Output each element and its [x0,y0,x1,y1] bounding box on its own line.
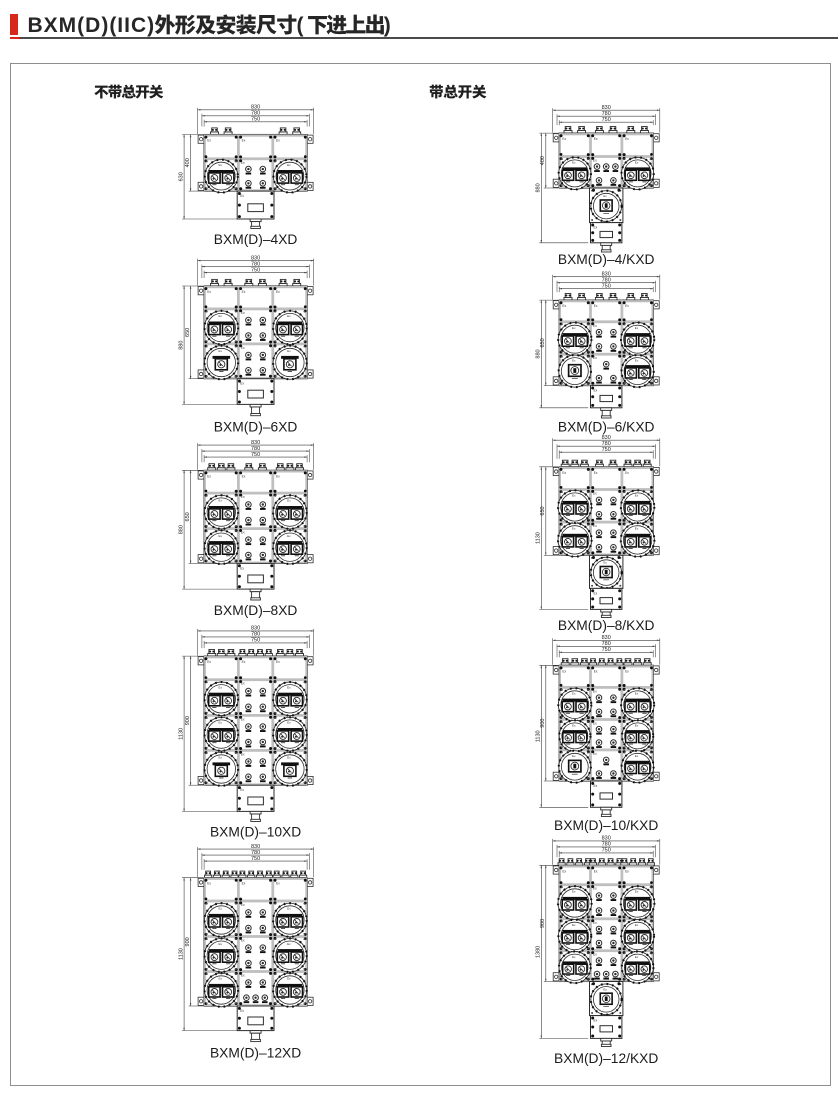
svg-text:Ex: Ex [635,358,639,362]
svg-text:Ex: Ex [276,882,280,886]
svg-text:BXM(D)–12/KXD: BXM(D)–12/KXD [554,1051,658,1066]
svg-text:Ex: Ex [572,358,576,362]
svg-text:Ex: Ex [219,163,223,167]
svg-text:Ex: Ex [635,494,639,498]
svg-text:Ex: Ex [625,869,629,873]
svg-text:Ex: Ex [287,534,291,538]
svg-text:1130: 1130 [536,532,542,544]
svg-text:Ex: Ex [594,869,598,873]
svg-text:Ex: Ex [219,721,223,725]
svg-text:Ex: Ex [635,923,639,927]
svg-text:Ex: Ex [207,882,211,886]
svg-text:Ex: Ex [241,495,245,499]
svg-text:Ex: Ex [287,977,291,981]
svg-text:630: 630 [179,172,185,181]
svg-text:Ex: Ex [572,692,576,696]
svg-text:750: 750 [251,856,260,862]
svg-text:400: 400 [185,158,191,167]
svg-text:Ex: Ex [625,304,629,308]
svg-text:Ex: Ex [594,471,598,475]
svg-text:Ex: Ex [241,682,245,686]
svg-text:Ex: Ex [287,685,291,689]
svg-text:Ex: Ex [241,161,245,165]
svg-text:Ex: Ex [240,788,244,792]
svg-text:Ex: Ex [593,159,597,163]
svg-text:Ex: Ex [572,754,576,758]
svg-text:650: 650 [540,338,546,347]
svg-text:Ex: Ex [242,139,246,143]
svg-text:750: 750 [602,117,611,123]
svg-text:900: 900 [185,937,191,946]
svg-text:Ex: Ex [207,290,211,294]
svg-text:Ex: Ex [593,752,597,756]
svg-text:1130: 1130 [179,948,185,960]
svg-text:Ex: Ex [594,137,598,141]
svg-text:BXM(D)–6/KXD: BXM(D)–6/KXD [558,419,655,434]
svg-text:Ex: Ex [219,534,223,538]
svg-text:Ex: Ex [219,314,223,318]
svg-text:Ex: Ex [593,887,597,891]
svg-text:Ex: Ex [241,346,245,350]
svg-text:Ex: Ex [572,724,576,728]
svg-text:1130: 1130 [179,728,185,740]
svg-text:BXM(D)–6XD: BXM(D)–6XD [214,420,298,435]
svg-text:Ex: Ex [594,784,598,788]
svg-text:Ex: Ex [593,689,597,693]
svg-text:Ex: Ex [594,1019,598,1023]
svg-text:750: 750 [602,284,611,290]
svg-text:Ex: Ex [562,137,566,141]
svg-text:Ex: Ex [562,471,566,475]
svg-text:Ex: Ex [594,669,598,673]
svg-text:Ex: Ex [603,561,607,565]
svg-text:Ex: Ex [241,939,245,943]
svg-text:Ex: Ex [572,161,576,165]
svg-text:Ex: Ex [287,756,291,760]
svg-text:Ex: Ex [562,669,566,673]
svg-text:Ex: Ex [572,326,576,330]
svg-text:Ex: Ex [241,717,245,721]
svg-text:Ex: Ex [572,955,576,959]
svg-text:Ex: Ex [219,685,223,689]
svg-text:Ex: Ex [572,527,576,531]
svg-text:Ex: Ex [240,194,244,198]
svg-text:Ex: Ex [240,1009,244,1013]
svg-text:Ex: Ex [207,139,211,143]
svg-text:Ex: Ex [287,349,291,353]
svg-text:Ex: Ex [241,903,245,907]
svg-text:Ex: Ex [593,356,597,360]
svg-text:750: 750 [602,848,611,854]
svg-text:Ex: Ex [287,163,291,167]
svg-text:Ex: Ex [219,499,223,503]
svg-text:Ex: Ex [287,721,291,725]
svg-text:1380: 1380 [536,946,542,958]
svg-text:Ex: Ex [287,499,291,503]
svg-text:Ex: Ex [207,474,211,478]
svg-text:Ex: Ex [572,890,576,894]
svg-text:Ex: Ex [276,660,280,664]
svg-text:900: 900 [185,716,191,725]
svg-text:750: 750 [602,447,611,453]
svg-text:Ex: Ex [635,754,639,758]
svg-text:BXM(D)–8/KXD: BXM(D)–8/KXD [558,618,655,633]
svg-text:Ex: Ex [287,907,291,911]
svg-text:Ex: Ex [241,974,245,978]
svg-text:880: 880 [536,349,542,358]
svg-text:Ex: Ex [625,471,629,475]
svg-text:750: 750 [602,647,611,653]
svg-text:750: 750 [251,452,260,458]
svg-text:BXM(D)–12XD: BXM(D)–12XD [210,1045,301,1060]
svg-text:880: 880 [179,341,185,350]
svg-text:Ex: Ex [635,890,639,894]
svg-text:650: 650 [185,512,191,521]
svg-text:Ex: Ex [241,752,245,756]
svg-text:Ex: Ex [562,304,566,308]
svg-text:Ex: Ex [219,907,223,911]
svg-text:Ex: Ex [593,492,597,496]
svg-text:750: 750 [251,638,260,644]
svg-text:Ex: Ex [603,194,607,198]
svg-text:Ex: Ex [594,226,598,230]
svg-text:650: 650 [185,328,191,337]
svg-text:750: 750 [251,267,260,273]
svg-text:650: 650 [540,506,546,515]
svg-text:BXM(D)–10XD: BXM(D)–10XD [210,825,301,840]
svg-text:BXM(D)–10/KXD: BXM(D)–10/KXD [554,818,658,833]
svg-text:750: 750 [251,117,260,123]
svg-text:Ex: Ex [242,290,246,294]
svg-text:BXM(D)–4/KXD: BXM(D)–4/KXD [558,252,655,267]
svg-text:Ex: Ex [287,942,291,946]
svg-text:Ex: Ex [572,494,576,498]
svg-text:BXM(D)–4XD: BXM(D)–4XD [214,232,298,247]
svg-text:Ex: Ex [593,524,597,528]
svg-text:Ex: Ex [562,869,566,873]
svg-text:880: 880 [536,183,542,192]
svg-text:Ex: Ex [219,349,223,353]
svg-text:Ex: Ex [593,921,597,925]
svg-text:Ex: Ex [635,326,639,330]
svg-text:Ex: Ex [242,660,246,664]
svg-text:1130: 1130 [536,730,542,742]
svg-text:Ex: Ex [240,382,244,386]
svg-text:Ex: Ex [219,942,223,946]
svg-text:Ex: Ex [594,304,598,308]
svg-text:Ex: Ex [635,692,639,696]
svg-text:Ex: Ex [241,311,245,315]
svg-text:Ex: Ex [593,324,597,328]
svg-text:Ex: Ex [635,527,639,531]
svg-text:Ex: Ex [242,882,246,886]
svg-text:Ex: Ex [625,669,629,673]
svg-text:Ex: Ex [219,977,223,981]
svg-text:Ex: Ex [594,591,598,595]
svg-text:BXM(D)–8XD: BXM(D)–8XD [214,603,298,618]
svg-text:Ex: Ex [276,290,280,294]
svg-text:Ex: Ex [603,987,607,991]
svg-text:Ex: Ex [276,474,280,478]
svg-text:Ex: Ex [593,722,597,726]
svg-text:880: 880 [179,525,185,534]
svg-text:Ex: Ex [593,953,597,957]
svg-text:Ex: Ex [572,923,576,927]
svg-text:Ex: Ex [240,566,244,570]
svg-text:400: 400 [540,156,546,165]
svg-text:Ex: Ex [635,724,639,728]
svg-text:Ex: Ex [276,139,280,143]
svg-text:Ex: Ex [287,314,291,318]
svg-text:900: 900 [540,919,546,928]
svg-text:Ex: Ex [635,161,639,165]
svg-text:900: 900 [540,719,546,728]
svg-text:Ex: Ex [219,756,223,760]
svg-text:Ex: Ex [625,137,629,141]
svg-text:Ex: Ex [594,389,598,393]
svg-text:Ex: Ex [241,531,245,535]
svg-text:Ex: Ex [207,660,211,664]
svg-text:Ex: Ex [635,955,639,959]
svg-text:Ex: Ex [242,474,246,478]
